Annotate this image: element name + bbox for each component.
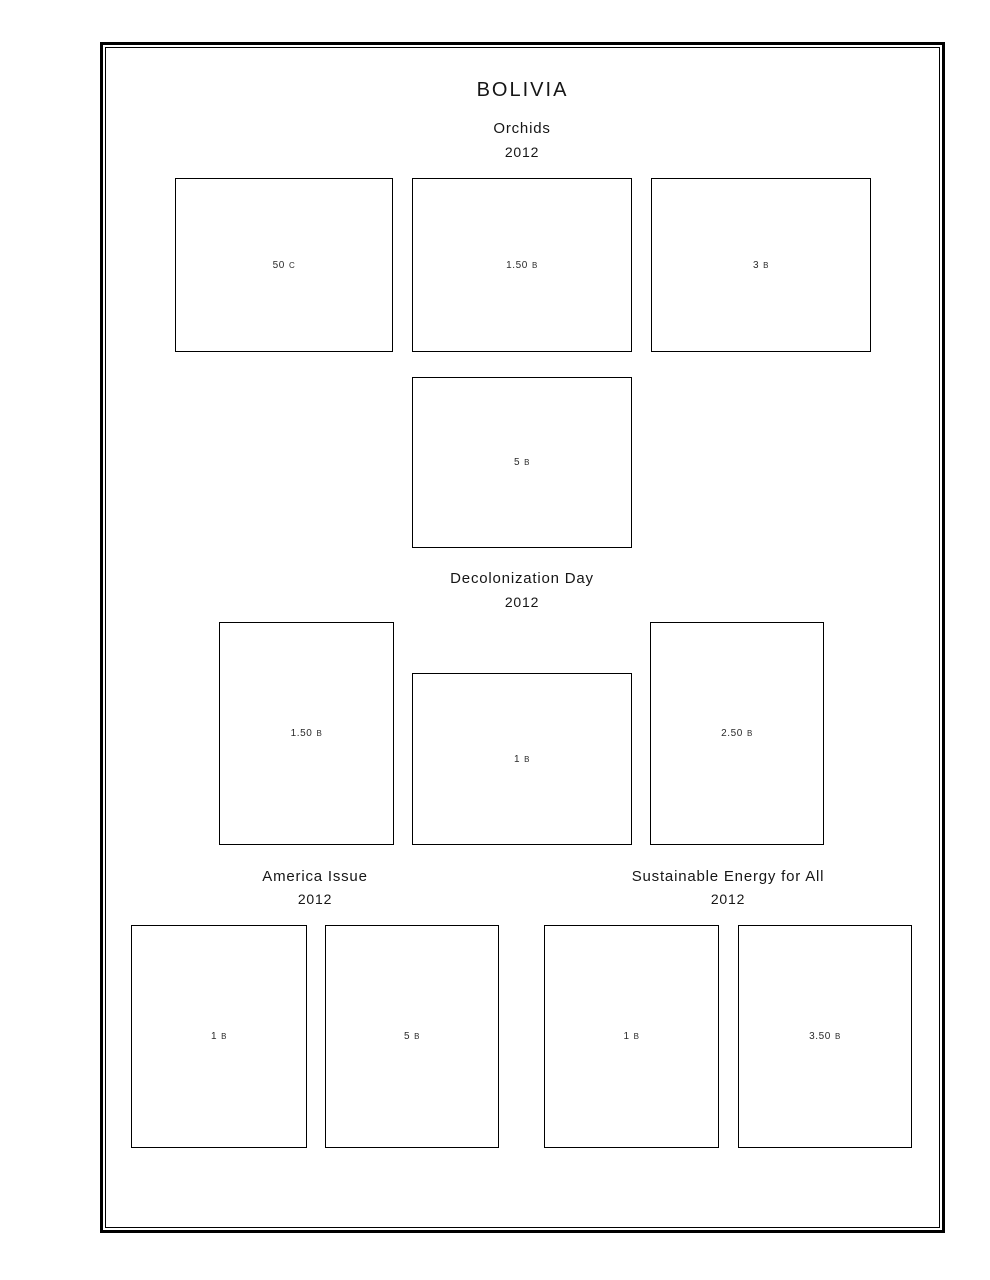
stamp-denomination: 1B: [623, 1031, 639, 1042]
stamp-currency: B: [835, 1032, 841, 1041]
page-title: BOLIVIA: [100, 79, 945, 102]
stamp-box-america-1b: 1B: [131, 925, 307, 1148]
stamp-denomination: 1.50B: [291, 728, 323, 739]
stamp-currency: C: [289, 261, 295, 270]
stamp-currency: B: [763, 261, 769, 270]
stamp-denomination: 3.50B: [809, 1031, 841, 1042]
stamp-currency: B: [524, 755, 530, 764]
stamp-value: 3: [753, 260, 759, 271]
stamp-box-america-5b: 5B: [325, 925, 499, 1148]
stamp-currency: B: [524, 458, 530, 467]
stamp-value: 1.50: [291, 728, 313, 739]
stamp-currency: B: [414, 1032, 420, 1041]
stamp-denomination: 1B: [514, 754, 530, 765]
section-title-orchids: Orchids: [493, 120, 550, 137]
stamp-box-decolonization-2-50b: 2.50B: [650, 622, 824, 845]
stamp-denomination: 2.50B: [721, 728, 753, 739]
stamp-currency: B: [747, 729, 753, 738]
stamp-denomination: 1.50B: [506, 260, 538, 271]
section-year-sustainable-energy: 2012: [711, 891, 745, 907]
stamp-currency: B: [634, 1032, 640, 1041]
stamp-denomination: 1B: [211, 1031, 227, 1042]
section-year-decolonization-day: 2012: [505, 594, 539, 610]
stamp-denomination: 5B: [514, 457, 530, 468]
stamp-box-orchids-50c: 50C: [175, 178, 393, 352]
stamp-value: 1: [623, 1031, 629, 1042]
stamp-value: 5: [404, 1031, 410, 1042]
stamp-box-decolonization-1-50b: 1.50B: [219, 622, 394, 845]
stamp-currency: B: [316, 729, 322, 738]
stamp-box-orchids-3b: 3B: [651, 178, 871, 352]
stamp-value: 2.50: [721, 728, 743, 739]
stamp-box-sustainable-1b: 1B: [544, 925, 719, 1148]
section-year-america-issue: 2012: [298, 891, 332, 907]
section-title-decolonization-day: Decolonization Day: [450, 570, 594, 587]
stamp-currency: B: [221, 1032, 227, 1041]
stamp-box-orchids-5b: 5B: [412, 377, 632, 548]
stamp-denomination: 5B: [404, 1031, 420, 1042]
stamp-box-decolonization-1b: 1B: [412, 673, 632, 845]
stamp-value: 50: [273, 260, 285, 271]
stamp-denomination: 3B: [753, 260, 769, 271]
stamp-box-orchids-1-50b: 1.50B: [412, 178, 632, 352]
stamp-box-sustainable-3-50b: 3.50B: [738, 925, 912, 1148]
stamp-value: 1: [514, 754, 520, 765]
section-year-orchids: 2012: [505, 144, 539, 160]
stamp-value: 3.50: [809, 1031, 831, 1042]
stamp-value: 5: [514, 457, 520, 468]
stamp-value: 1.50: [506, 260, 528, 271]
stamp-value: 1: [211, 1031, 217, 1042]
stamp-denomination: 50C: [273, 260, 296, 271]
section-title-america-issue: America Issue: [262, 868, 367, 885]
stamp-currency: B: [532, 261, 538, 270]
section-title-sustainable-energy: Sustainable Energy for All: [632, 868, 825, 885]
